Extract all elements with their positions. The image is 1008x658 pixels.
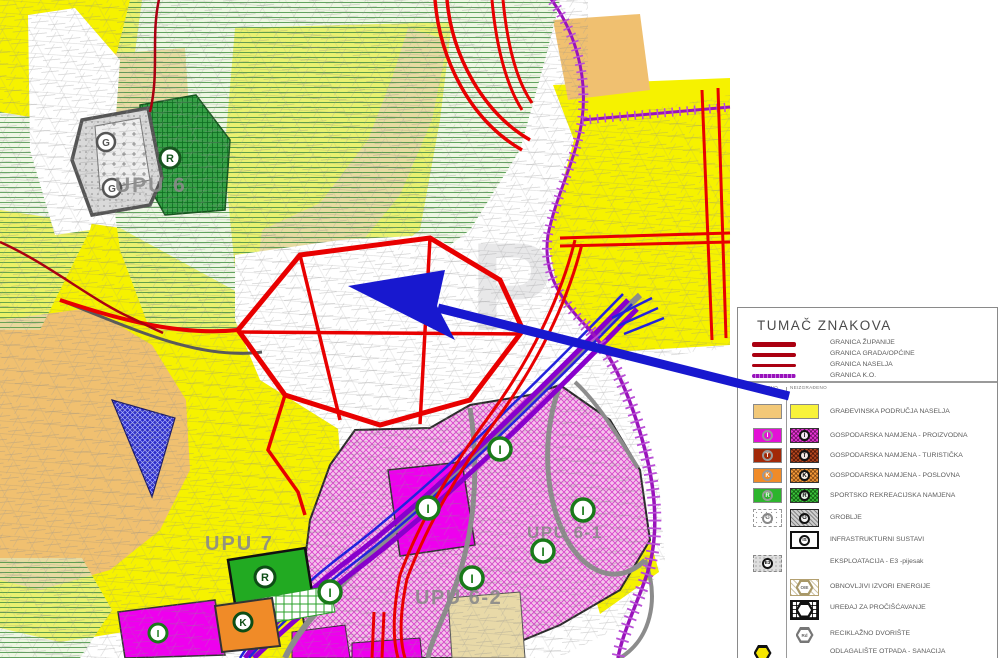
- marker-proizvodna-4: I: [532, 540, 554, 562]
- swatch-naselja-built: [753, 404, 782, 419]
- svg-text:R: R: [166, 153, 174, 165]
- marker-proizvodna-5: I: [461, 567, 483, 589]
- upu61-label: UPU 6-1: [527, 523, 603, 542]
- swatch-poslovna-built: K: [753, 468, 782, 483]
- upu62-label: UPU 6-2: [415, 587, 502, 609]
- row-uredjaj-label: UREĐAJ ZA PROČIŠĆAVANJE: [830, 604, 926, 611]
- row-turisticka-label: GOSPODARSKA NAMJENA - TURISTIČKA: [830, 452, 963, 459]
- legend-title: TUMAČ ZNAKOVA: [757, 318, 892, 333]
- granica-zupanije-symbol: [752, 342, 796, 347]
- swatch-turisticka-unbuilt: T: [790, 448, 819, 463]
- row-oie-label: OBNOVLJIVI IZVORI ENERGIJE: [830, 583, 930, 590]
- swatch-poslovna-unbuilt: K: [790, 468, 819, 483]
- uredjaj-hexagon-icon: [796, 602, 814, 618]
- poslovna-circle-icon: K: [762, 470, 773, 481]
- granica-naselja-label: GRANICA NASELJA: [830, 361, 893, 368]
- marker-poslovna: K: [234, 613, 252, 631]
- turisticka-circle-icon: T: [762, 450, 773, 461]
- granica-grada-symbol: [752, 353, 796, 357]
- svg-text:G: G: [102, 138, 110, 149]
- row-infrastruktura-label: INFRASTRUKTURNI SUSTAVI: [830, 536, 924, 543]
- oie-hexagon-icon: OIE: [796, 580, 814, 596]
- upu6-label: UPU 6: [115, 174, 187, 197]
- row-reciklazno-label: RECIKLAŽNO DVORIŠTE: [830, 630, 910, 637]
- groblje-circle-icon: G: [799, 513, 810, 524]
- row-proizvodna-label: GOSPODARSKA NAMJENA - PROIZVODNA: [830, 432, 967, 439]
- column-header-built: IZGRAĐENO: [748, 385, 778, 390]
- upu7-label: UPU 7: [205, 533, 274, 555]
- swatch-sport-built: R: [753, 488, 782, 503]
- sport-circle-icon: R: [762, 490, 773, 501]
- eksploatacija-circle-icon: E3: [762, 558, 773, 569]
- swatch-groblje-built: G: [753, 509, 782, 527]
- sport-circle-icon: R: [799, 490, 810, 501]
- swatch-reciklazno: Rd: [790, 626, 819, 644]
- swatch-sport-unbuilt: R: [790, 488, 819, 503]
- svg-text:I: I: [426, 502, 429, 516]
- marker-proizvodna-1: I: [417, 497, 439, 519]
- marker-sport-2: R: [255, 567, 275, 587]
- swatch-naselja-unbuilt: [790, 404, 819, 419]
- proizvodna-circle-icon: I: [799, 430, 810, 441]
- granica-naselja-symbol: [752, 364, 796, 367]
- odlagaliste-hexagon-icon: [754, 645, 772, 658]
- marker-proizvodna-7: I: [149, 624, 167, 642]
- swatch-infrastruktura: IS: [790, 531, 819, 549]
- legend-column-divider: [786, 387, 787, 658]
- swatch-uredjaj: [790, 600, 819, 620]
- svg-text:I: I: [498, 443, 501, 457]
- marker-groblje-1: G: [97, 133, 115, 151]
- swatch-proizvodna-built: I: [753, 428, 782, 443]
- zoning-plan-screenshot: P: [0, 0, 1008, 658]
- svg-text:I: I: [541, 545, 544, 559]
- row-poslovna-label: GOSPODARSKA NAMJENA - POSLOVNA: [830, 472, 960, 479]
- granica-ko-symbol: [752, 374, 796, 378]
- marker-proizvodna-2: I: [489, 438, 511, 460]
- legend-box: TUMAČ ZNAKOVA GRANICA ŽUPANIJE GRANICA G…: [737, 307, 998, 658]
- watermark-letter: P: [470, 218, 553, 357]
- swatch-turisticka-built: T: [753, 448, 782, 463]
- marker-sport-1: R: [160, 148, 180, 168]
- svg-text:K: K: [239, 618, 247, 629]
- swatch-oie: OIE: [790, 579, 819, 596]
- turisticka-circle-icon: T: [799, 450, 810, 461]
- marker-proizvodna-3: I: [572, 499, 594, 521]
- groblje-circle-icon: G: [762, 513, 773, 524]
- swatch-odlagaliste: [748, 644, 777, 658]
- row-eksploatacija-label: EKSPLOATACIJA - E3 -pijesak: [830, 558, 923, 565]
- svg-text:I: I: [328, 586, 331, 600]
- svg-text:R: R: [261, 572, 269, 584]
- svg-text:I: I: [157, 629, 160, 640]
- marker-proizvodna-6: I: [319, 581, 341, 603]
- row-naselja-label: GRAĐEVINSKA PODRUČJA NASELJA: [830, 408, 950, 415]
- svg-text:I: I: [581, 504, 584, 518]
- svg-text:I: I: [470, 572, 473, 586]
- row-sport-label: SPORTSKO REKREACIJSKA NAMJENA: [830, 492, 955, 499]
- legend-divider: [738, 381, 997, 383]
- poslovna-circle-icon: K: [799, 470, 810, 481]
- column-header-unbuilt: NEIZGRAĐENO: [790, 385, 827, 390]
- infrastruktura-circle-icon: IS: [799, 535, 810, 546]
- granica-grada-label: GRANICA GRADA/OPĆINE: [830, 350, 915, 357]
- row-odlagaliste-label: ODLAGALIŠTE OTPADA - SANACIJA: [830, 648, 945, 655]
- swatch-eksploatacija: E3: [753, 555, 782, 572]
- granica-ko-label: GRANICA K.O.: [830, 372, 876, 379]
- reciklazno-hexagon-icon: Rd: [796, 627, 814, 643]
- proizvodna-circle-icon: I: [762, 430, 773, 441]
- swatch-proizvodna-unbuilt: I: [790, 428, 819, 443]
- row-groblje-label: GROBLJE: [830, 514, 862, 521]
- swatch-groblje-unbuilt: G: [790, 509, 819, 527]
- granica-zupanije-label: GRANICA ŽUPANIJE: [830, 339, 895, 346]
